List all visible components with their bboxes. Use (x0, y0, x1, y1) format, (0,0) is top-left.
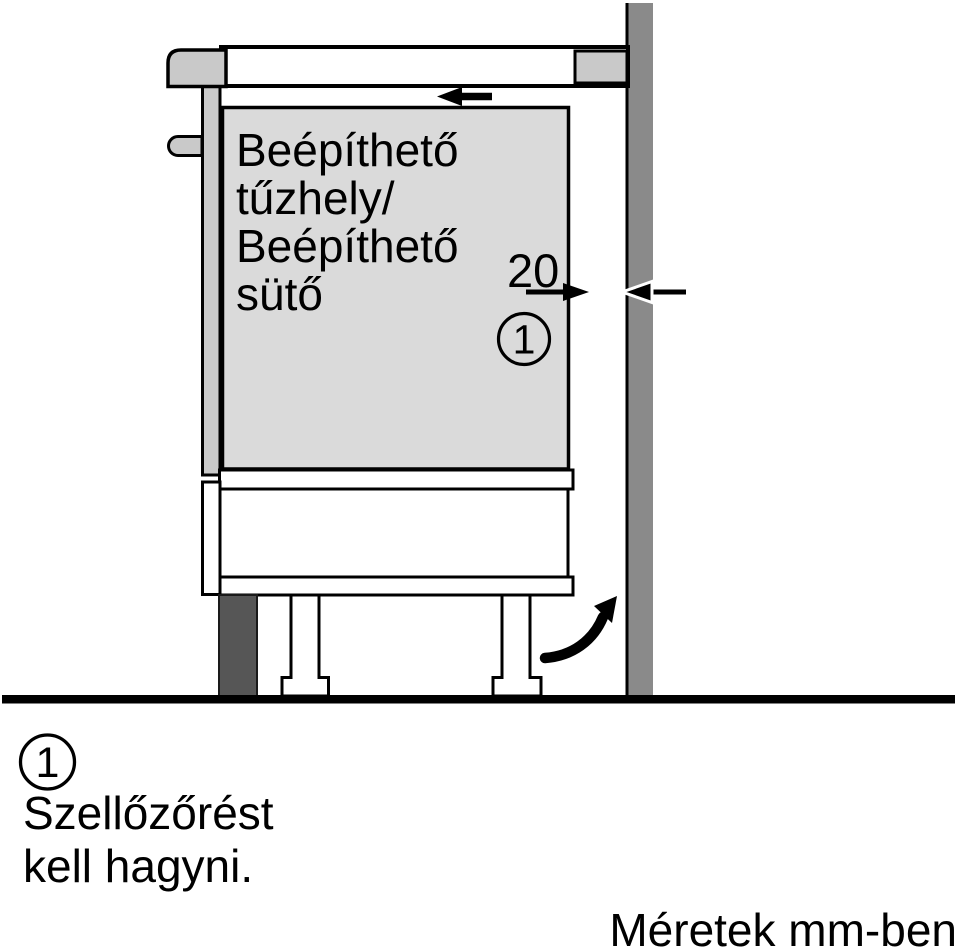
cabinet-leg-right (493, 595, 541, 696)
installation-diagram-page: Beépíthető tűzhely/ Beépíthető sütő 20 1 (0, 0, 958, 952)
plinth (219, 595, 257, 696)
lower-cabinet-bottom-shelf (220, 577, 574, 595)
worktop-end-block (575, 51, 627, 83)
mounting-tab (169, 137, 202, 156)
wall (627, 3, 653, 696)
appliance-label-line-4: sütő (236, 268, 323, 320)
legend-note-line-1: Szellőzőrést (23, 787, 274, 839)
lower-cabinet-top-shelf (220, 470, 574, 489)
hob-edge-block (168, 50, 226, 87)
legend-marker-number: 1 (36, 739, 60, 787)
lower-cabinet-left-stile (203, 482, 221, 595)
cabinet-side-panel (203, 70, 221, 475)
floor-line (2, 695, 955, 704)
appliance-label-line-3: Beépíthető (236, 220, 459, 272)
units-note: Méretek mm-ben (609, 904, 957, 952)
cabinet-leg-left (282, 595, 329, 696)
legend-marker-badge: 1 (21, 735, 75, 789)
appliance-label-line-2: tűzhely/ (236, 172, 395, 224)
appliance-label-line-1: Beépíthető (236, 124, 459, 176)
oven-front-panel (220, 489, 569, 577)
callout-1-number: 1 (513, 317, 536, 363)
lower-cabinet (203, 470, 574, 696)
worktop (221, 47, 628, 86)
legend: 1 Szellőzőrést kell hagyni. (21, 735, 274, 892)
legend-note-line-2: kell hagyni. (23, 840, 253, 892)
gap-dimension-value: 20 (507, 244, 559, 297)
installation-diagram: Beépíthető tűzhely/ Beépíthető sütő 20 1 (0, 0, 958, 952)
insert-direction-arrow-icon (437, 87, 492, 106)
airflow-curved-arrow-icon (545, 596, 617, 658)
